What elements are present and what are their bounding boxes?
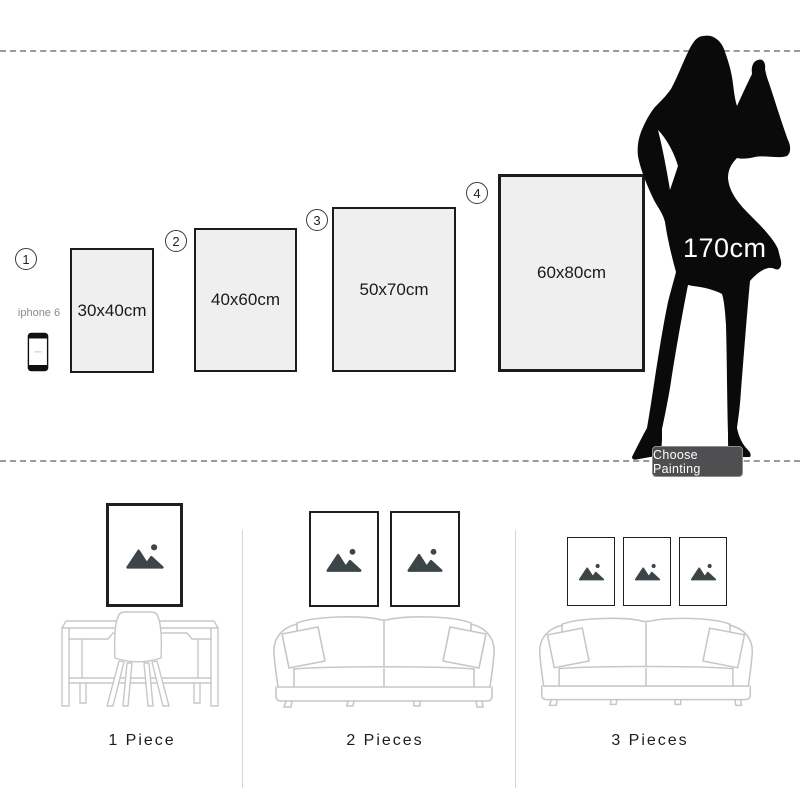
size-option-3-badge: 3 bbox=[306, 209, 328, 231]
sofa-drawing bbox=[268, 612, 500, 708]
image-placeholder-icon bbox=[125, 540, 165, 571]
size-panel-label: 30x40cm bbox=[78, 301, 147, 321]
image-placeholder-icon bbox=[690, 561, 717, 582]
wall-frame bbox=[679, 537, 727, 606]
iphone-label: iphone 6 bbox=[9, 307, 69, 319]
desk-and-chair-drawing bbox=[60, 610, 220, 710]
badge-number: 3 bbox=[313, 213, 320, 228]
choose-painting-label: Choose Painting bbox=[653, 448, 742, 476]
image-placeholder-icon bbox=[634, 561, 661, 582]
wall-frame bbox=[623, 537, 671, 606]
image-placeholder-icon bbox=[325, 545, 363, 574]
size-panel-60x80: 60x80cm bbox=[498, 174, 645, 372]
size-panel-30x40: 30x40cm bbox=[70, 248, 154, 373]
wall-frame bbox=[309, 511, 379, 607]
piece-count-label-2: 2 Pieces bbox=[325, 732, 445, 750]
size-option-4-badge: 4 bbox=[466, 182, 488, 204]
piece-count-label-1: 1 Piece bbox=[82, 732, 202, 750]
image-placeholder-icon bbox=[578, 561, 605, 582]
column-divider bbox=[242, 530, 243, 788]
iphone-icon bbox=[27, 332, 49, 372]
size-panel-50x70: 50x70cm bbox=[332, 207, 456, 372]
badge-number: 2 bbox=[172, 234, 179, 249]
wall-frame bbox=[106, 503, 183, 607]
size-guide-infographic: 1 2 3 4 iphone 6 30x40cm 40x60cm 50x70cm… bbox=[0, 0, 800, 800]
choose-painting-button[interactable]: Choose Painting bbox=[652, 446, 743, 477]
piece-count-label-3: 3 Pieces bbox=[590, 732, 710, 750]
sofa-drawing bbox=[534, 612, 758, 708]
column-divider bbox=[515, 530, 516, 788]
size-option-1-badge: 1 bbox=[15, 248, 37, 270]
badge-number: 4 bbox=[473, 186, 480, 201]
wall-frame bbox=[567, 537, 615, 606]
size-option-2-badge: 2 bbox=[165, 230, 187, 252]
image-placeholder-icon bbox=[406, 545, 444, 574]
size-panel-label: 50x70cm bbox=[360, 280, 429, 300]
badge-number: 1 bbox=[22, 252, 29, 267]
size-panel-40x60: 40x60cm bbox=[194, 228, 297, 372]
model-height-label: 170cm bbox=[683, 233, 763, 264]
size-panel-label: 60x80cm bbox=[537, 263, 606, 283]
wall-frame bbox=[390, 511, 460, 607]
size-panel-label: 40x60cm bbox=[211, 290, 280, 310]
